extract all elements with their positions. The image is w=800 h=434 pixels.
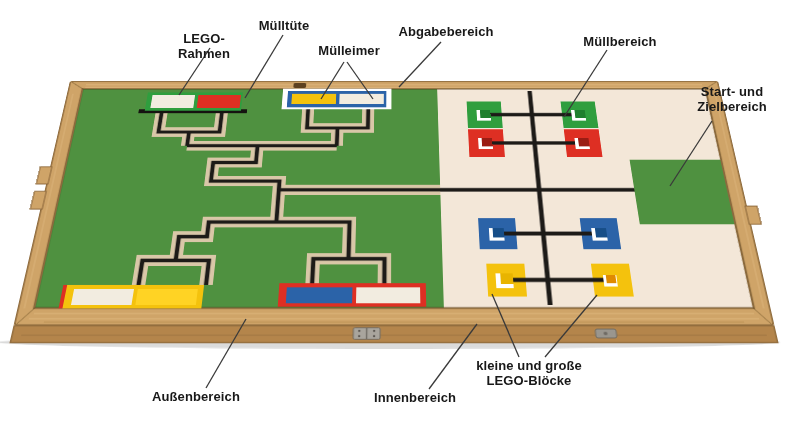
label-aussenbereich: Außenbereich [146,389,246,404]
arena-board-art [9,81,779,345]
front-rail [9,326,778,344]
lego-rahmen-top-left [138,92,249,113]
label-innenbereich: Innenbereich [365,390,465,405]
arena-board [9,0,779,345]
latch-icon [595,329,617,338]
label-muelltuete: Mülltüte [246,18,322,33]
label-muellbereich: Müllbereich [575,34,665,49]
label-lego-rahmen: LEGO-Rahmen [158,31,250,61]
muelleimer-yellow [291,94,336,104]
start-ziel-area [630,160,735,225]
lego-rahmen-bottom-left [59,285,205,309]
arena-board-tilt [9,81,779,345]
lego-rahmen-bottom-right [278,283,427,306]
wood-knot [293,83,306,88]
muelleimer-white [339,94,384,104]
label-abgabebereich: Abgabebereich [394,24,498,39]
abgabebereich-frame-top-right [282,89,392,110]
label-muelleimer: Mülleimer [311,43,387,58]
label-lego-bloecke: kleine und große LEGO-Blöcke [468,358,590,388]
annotated-arena-figure: LEGO-Rahmen Mülltüte Mülleimer Abgabeber… [0,0,800,434]
white-plate [150,95,195,108]
muelltuete-plate [197,95,241,108]
hinge-icon [353,328,380,339]
label-start-ziel: Start- und Zielbereich [691,84,773,114]
